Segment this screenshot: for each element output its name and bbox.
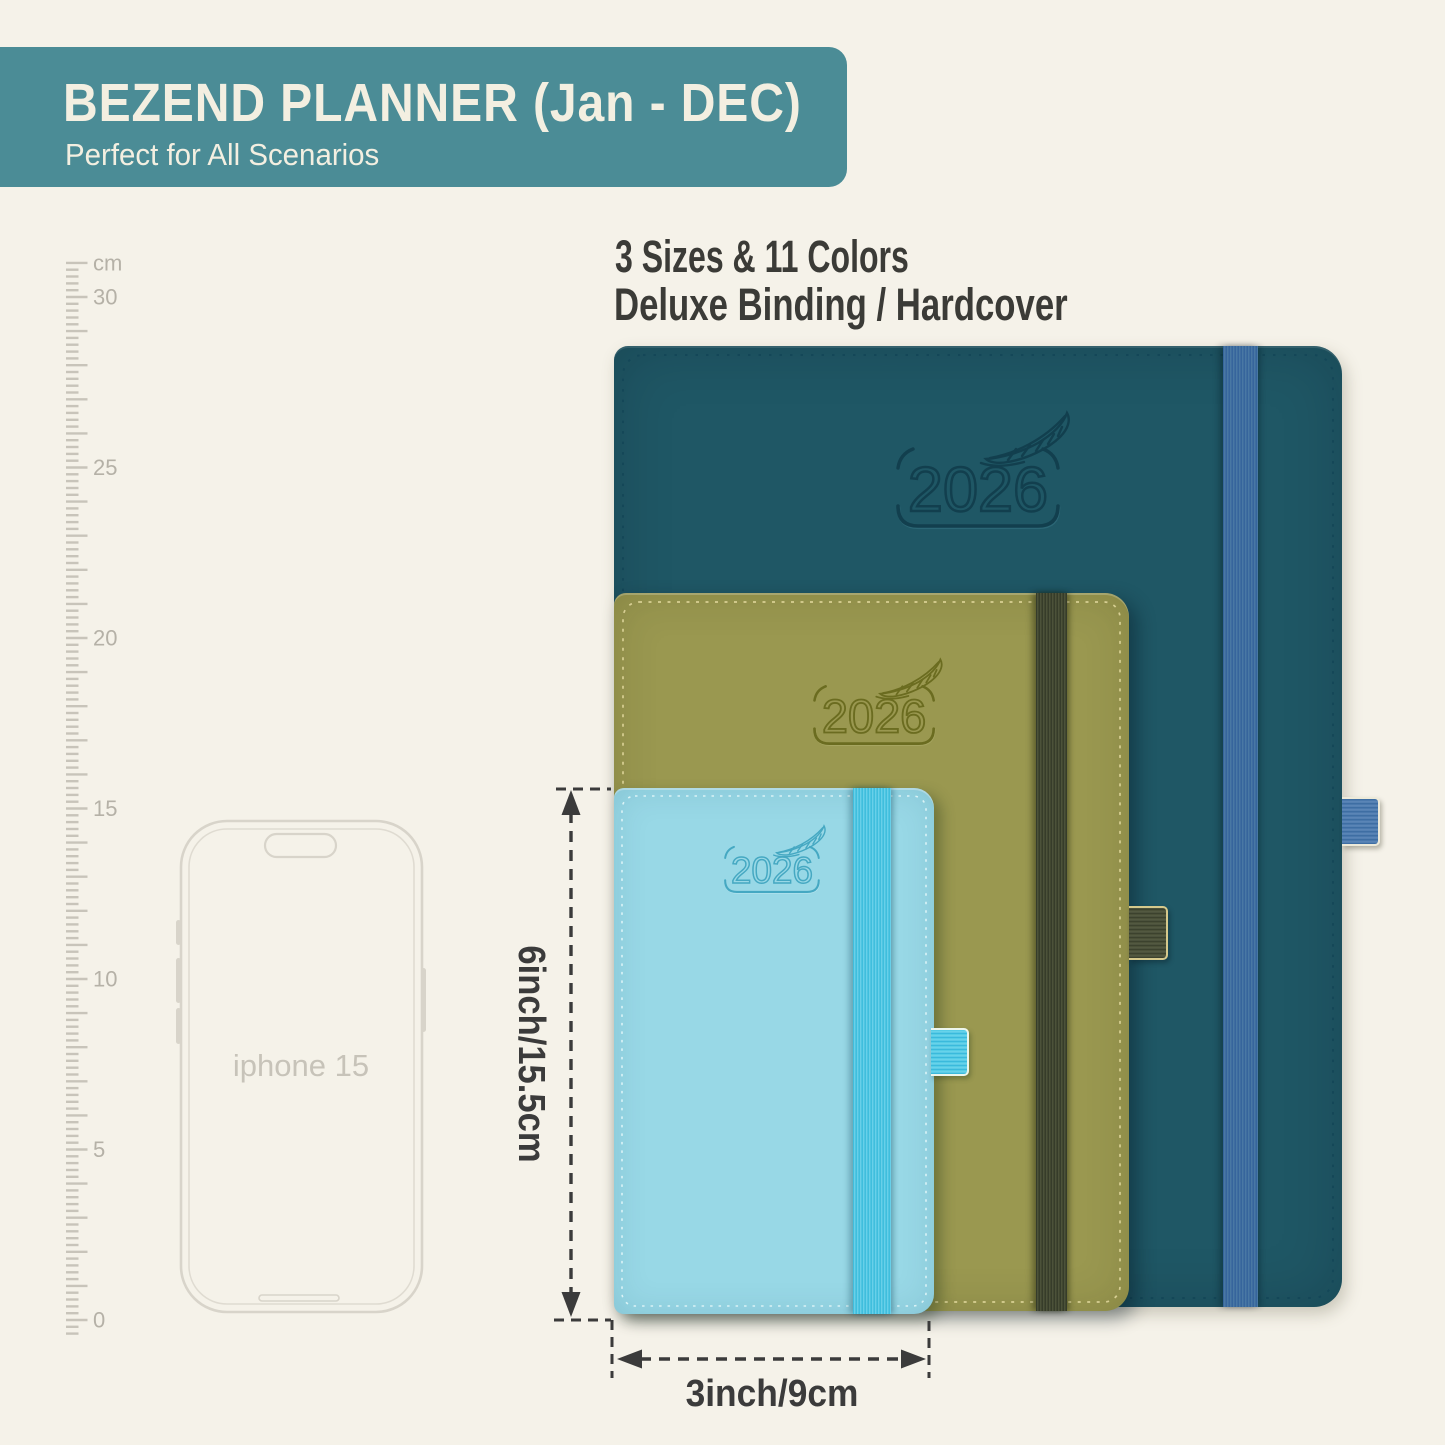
svg-text:3inch/9cm: 3inch/9cm [686,1372,859,1414]
svg-text:6inch/15.5cm: 6inch/15.5cm [511,945,554,1162]
